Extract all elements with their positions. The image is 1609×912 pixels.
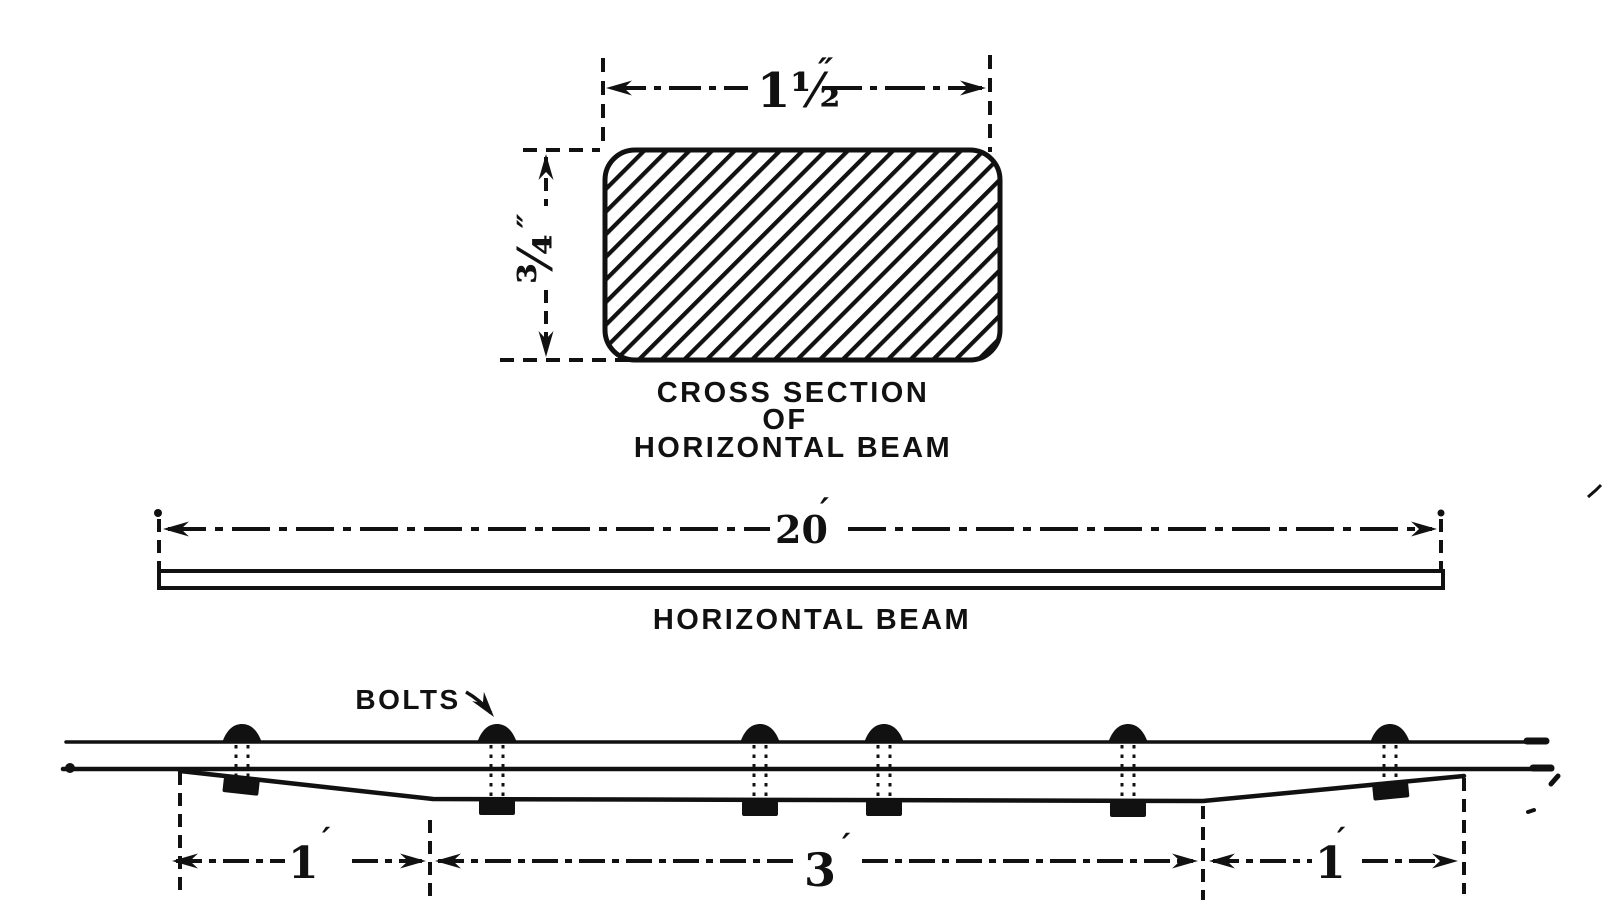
length-dimension: 20 ′	[775, 491, 829, 552]
bolt-head	[222, 724, 262, 743]
cross-section-caption: CROSS SECTION OF HORIZONTAL BEAM	[634, 377, 952, 464]
bolt-head	[864, 724, 904, 743]
segment-1-unit: ′	[322, 820, 331, 858]
caption-line-3: HORIZONTAL BEAM	[634, 432, 952, 464]
bolts-leader-arrowhead	[472, 692, 500, 722]
width-unit: ″	[818, 51, 833, 91]
dimension-arrowhead	[1172, 854, 1198, 869]
beam-bottom-line-end	[65, 763, 75, 773]
dimension-arrowhead	[539, 154, 554, 180]
lower-member	[180, 771, 1464, 801]
bolts-label: BOLTS	[355, 684, 460, 715]
width-dimension: 1½ ″	[757, 51, 840, 119]
segment-2-value: 3	[804, 843, 836, 897]
bolt-head	[477, 724, 517, 743]
bolt-nut	[866, 801, 902, 816]
segment-dimension-3: 1 ′	[1315, 820, 1346, 889]
bolt	[1370, 724, 1410, 801]
segment-3-unit: ′	[1337, 820, 1346, 858]
bolt	[222, 724, 262, 796]
ink-speck	[1528, 810, 1534, 812]
bolt-head	[1108, 724, 1148, 743]
extension-dot	[154, 509, 162, 517]
book-figure-page: 1½ ″ ¾ ″ CROSS SECTION OF HORIZONTAL BEA…	[0, 0, 1609, 912]
bolt-nut	[742, 801, 778, 816]
elevation-view: 20 ′ HORIZONTAL BEAM	[154, 485, 1601, 636]
depth-unit: ″	[510, 213, 548, 228]
beam-elevation	[159, 571, 1443, 588]
dimension-arrowhead	[1432, 854, 1458, 869]
segment-2-unit: ′	[842, 826, 851, 864]
ink-speck	[1588, 485, 1601, 497]
length-unit: ′	[820, 491, 829, 531]
depth-dimension: ¾ ″	[508, 213, 564, 284]
ink-speck	[1551, 776, 1558, 784]
depth-value: ¾	[508, 234, 564, 284]
segment-1-value: 1	[288, 838, 319, 889]
figure-canvas: 1½ ″ ¾ ″ CROSS SECTION OF HORIZONTAL BEA…	[0, 0, 1609, 912]
plan-view: BOLTS 1 ′ 3 ′ 1 ′	[63, 684, 1558, 900]
bolt-head	[1370, 724, 1410, 743]
cross-section-view: 1½ ″ ¾ ″ CROSS SECTION OF HORIZONTAL BEA…	[500, 51, 1000, 464]
extension-dot	[1438, 510, 1445, 517]
segment-dimension-1: 1 ′	[288, 820, 331, 889]
elevation-caption: HORIZONTAL BEAM	[653, 604, 971, 636]
bolt-head	[740, 724, 780, 743]
bolt-nut	[479, 800, 515, 815]
beam-cross-section	[605, 150, 1000, 360]
segment-dimension-2: 3 ′	[804, 826, 851, 897]
bolt-nut	[1110, 802, 1146, 817]
